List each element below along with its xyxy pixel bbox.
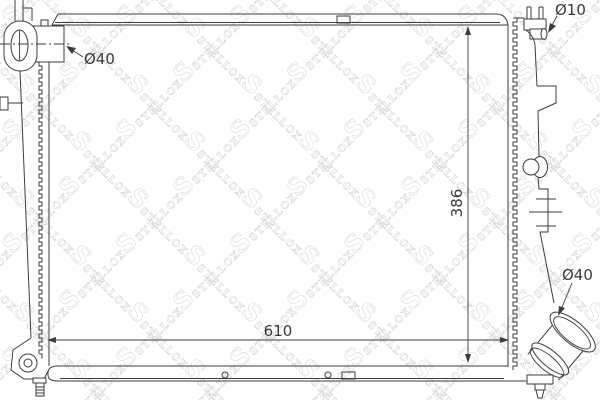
right-bracket-fins xyxy=(529,199,562,226)
label-inlet-diameter: Ø40 xyxy=(84,50,115,68)
label-bleeder-diameter: Ø10 xyxy=(555,1,586,19)
label-outlet-diameter: Ø40 xyxy=(562,266,593,284)
mounting-pin-left xyxy=(33,378,46,396)
dim-core-width: 610 xyxy=(47,322,509,343)
left-tab xyxy=(0,97,8,110)
right-bracket xyxy=(537,86,556,111)
dim-core-height-label: 386 xyxy=(448,189,466,218)
dim-core-width-label: 610 xyxy=(264,322,293,340)
radiator-technical-drawing: SSTELLOXSSTELLOXSSTELLOXSSTELLOXSSTELLOX… xyxy=(0,0,600,400)
drain-hole xyxy=(325,372,331,378)
